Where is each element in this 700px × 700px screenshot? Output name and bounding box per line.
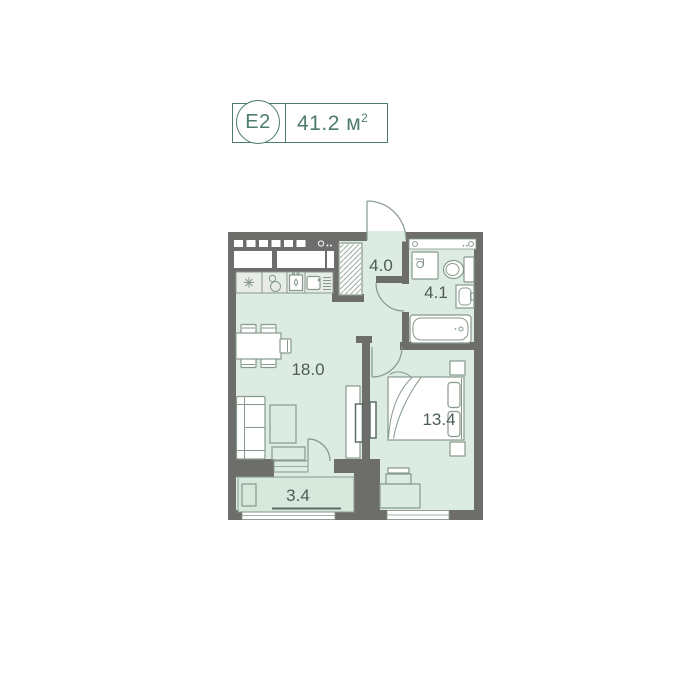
pillow — [448, 383, 460, 408]
hallway-area-label: 4.0 — [369, 256, 393, 275]
bathroom-vent — [409, 239, 476, 249]
floorplan-page: E2 41.2 м2 — [0, 0, 700, 700]
nightstand — [450, 361, 465, 375]
bedroom-area-label: 13.4 — [422, 410, 455, 429]
fridge-icon — [244, 278, 254, 288]
living-top-windows — [234, 240, 334, 268]
entrance-opening — [367, 231, 406, 242]
floor-plan: 4.0 4.1 18.0 13.4 3.4 — [0, 0, 700, 700]
nightstand — [450, 442, 465, 456]
tv-icon — [370, 402, 376, 438]
wardrobe — [339, 243, 362, 295]
dining-table — [236, 333, 281, 359]
bathtub-icon — [410, 315, 471, 343]
tv-console — [346, 386, 363, 458]
washing-machine-icon — [412, 252, 438, 279]
living-area-label: 18.0 — [291, 360, 324, 379]
bed — [388, 372, 464, 440]
balcony-area-label: 3.4 — [286, 486, 310, 505]
bathroom-area-label: 4.1 — [424, 283, 448, 302]
bathroom-sink-icon — [456, 285, 474, 308]
tv-icon — [356, 404, 363, 442]
kitchen-counter — [236, 272, 333, 293]
sofa — [237, 397, 266, 460]
dishwasher-icon — [290, 273, 303, 291]
chair — [280, 339, 291, 353]
